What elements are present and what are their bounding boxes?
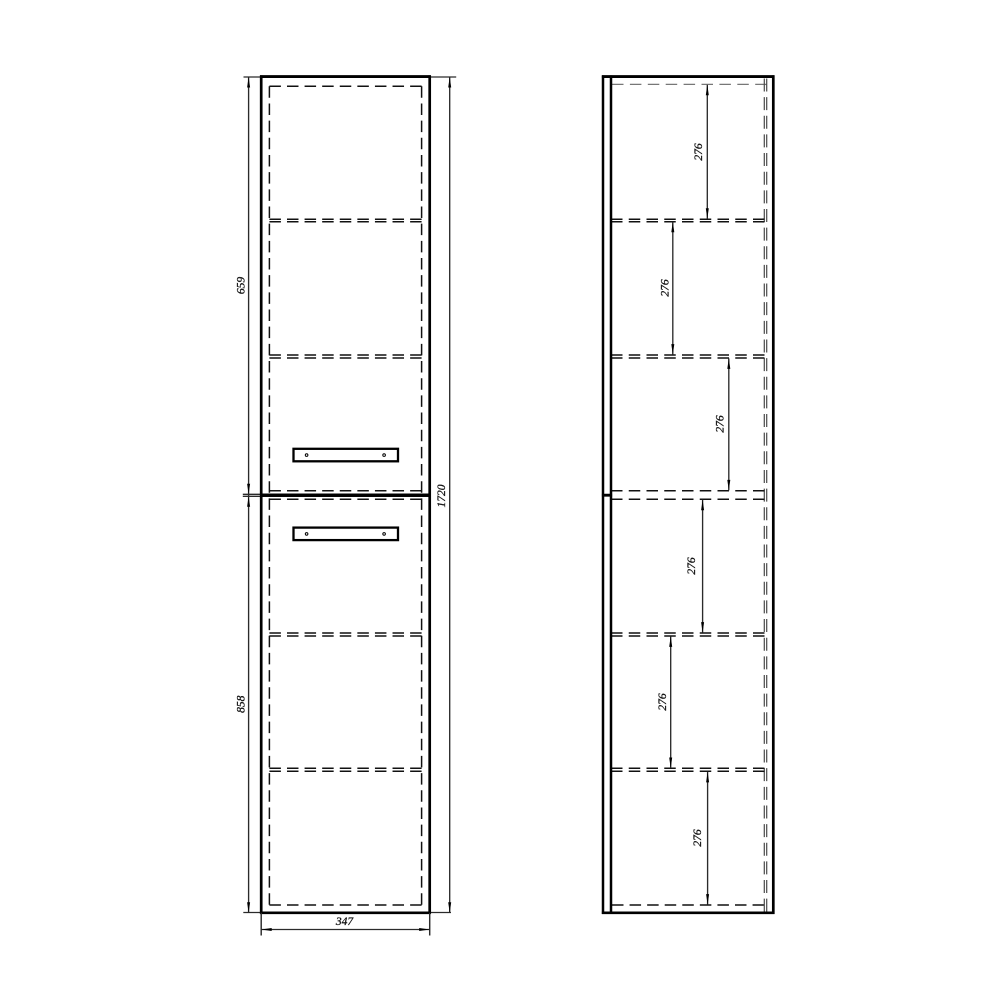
svg-text:1720: 1720 bbox=[436, 484, 448, 507]
svg-text:347: 347 bbox=[335, 916, 355, 928]
svg-text:276: 276 bbox=[657, 693, 669, 711]
svg-text:276: 276 bbox=[659, 279, 671, 297]
svg-text:276: 276 bbox=[693, 143, 705, 161]
svg-text:858: 858 bbox=[235, 695, 247, 713]
svg-text:276: 276 bbox=[714, 415, 726, 433]
svg-text:659: 659 bbox=[235, 277, 247, 295]
svg-text:276: 276 bbox=[692, 829, 704, 847]
svg-text:276: 276 bbox=[686, 557, 698, 575]
